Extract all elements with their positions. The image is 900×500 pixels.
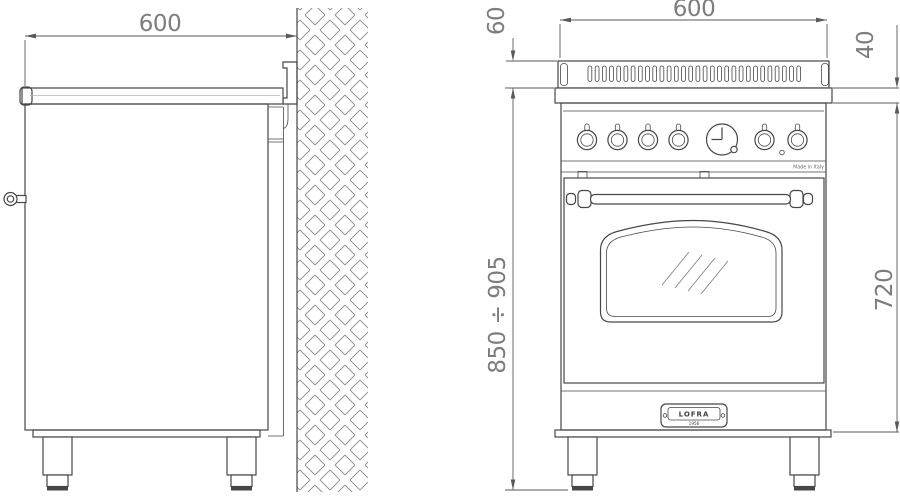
backguard-bracket-right [822, 64, 829, 86]
body-height-label: 720 [872, 269, 898, 311]
side-rear-step [268, 104, 288, 129]
door-handle-bar [567, 191, 813, 208]
arrowhead-right [286, 34, 297, 39]
vent-slot [646, 66, 650, 82]
knob-outer [577, 130, 596, 149]
side-foot-right [227, 437, 256, 491]
arrowhead-left [560, 18, 571, 23]
vent-slot [710, 66, 714, 82]
badge-year-label: 1956 [689, 421, 700, 426]
arrowhead-right [816, 18, 827, 23]
vent-slot [689, 66, 693, 82]
side-foot-left [43, 437, 72, 491]
arrowhead-left [25, 34, 36, 39]
vent-slot [667, 66, 671, 82]
vent-slot [588, 66, 592, 82]
dimension-side-width: 600 [25, 11, 297, 86]
door-hinge-right [700, 172, 709, 179]
front-view: Made in Italy LOFRA 1956 [555, 61, 832, 491]
vent-slot [674, 66, 678, 82]
vent-slot [682, 66, 686, 82]
indicator-light [780, 150, 785, 155]
side-rear-joints [268, 139, 284, 436]
side-view [4, 62, 297, 491]
front-width-label: 600 [673, 0, 715, 22]
door-window [601, 221, 783, 323]
oven-clock [707, 124, 738, 155]
front-foot-right [790, 437, 819, 491]
worktop-edge-label: 40 [853, 31, 879, 59]
made-in-italy-label: Made in Italy [793, 165, 824, 171]
control-knob [788, 124, 807, 150]
arrowhead-down [895, 422, 900, 433]
knob-outer [638, 130, 657, 149]
vent-slot [725, 66, 729, 82]
side-body [25, 104, 268, 430]
control-knob [669, 124, 688, 150]
vent-slot [732, 66, 736, 82]
oven-door [564, 178, 824, 383]
side-worktop [22, 88, 283, 104]
vent-slot [595, 66, 599, 82]
vent-slots [588, 66, 801, 82]
foot-base [47, 487, 68, 491]
vent-slot [782, 66, 786, 82]
vent-slot [624, 66, 628, 82]
vent-slot [617, 66, 621, 82]
side-backsplash [283, 62, 297, 104]
dimension-front-width: 600 [560, 0, 827, 58]
vent-slot [653, 66, 657, 82]
control-knobs [577, 124, 807, 150]
wall-hatch [297, 8, 368, 492]
handle-knob-outer [4, 193, 17, 206]
side-door-handle [4, 193, 26, 206]
foot-base [794, 487, 815, 491]
glass-reflection-lines [662, 252, 728, 294]
control-knob [608, 124, 627, 150]
vent-slot [754, 66, 758, 82]
vent-slot [696, 66, 700, 82]
handle-bar [591, 195, 791, 205]
badge-brand-label: LOFRA [679, 411, 710, 419]
overall-height-label: 850 ÷ 905 [485, 256, 511, 373]
control-knob [755, 124, 774, 150]
side-plinth [33, 430, 260, 437]
front-worktop [555, 88, 832, 103]
vent-slot [797, 66, 801, 82]
side-width-label: 600 [139, 11, 181, 37]
vent-slot [610, 66, 614, 82]
arrowhead-down [511, 480, 516, 491]
door-hinge-left [578, 172, 587, 179]
dimension-worktop-edge: 40 [833, 25, 899, 114]
arrowhead-down [895, 78, 900, 89]
window-inner-glass [607, 227, 777, 317]
arrowhead-down [511, 51, 516, 62]
control-knob [577, 124, 596, 150]
technical-drawing-sheet: 600 Made in Italy [0, 0, 900, 500]
vent-slot [602, 66, 606, 82]
vent-slot [761, 66, 765, 82]
front-foot-left [568, 437, 597, 491]
vent-slot [768, 66, 772, 82]
vent-slot [631, 66, 635, 82]
vent-slot [703, 66, 707, 82]
foot-base [231, 487, 252, 491]
vent-slot [790, 66, 794, 82]
vent-slot [775, 66, 779, 82]
range-cooker-dimension-drawing: 600 Made in Italy [0, 0, 900, 500]
vent-slot [660, 66, 664, 82]
dimension-backguard-height: 60 [484, 7, 557, 99]
knob-outer [755, 130, 774, 149]
knob-outer [669, 130, 688, 149]
dimension-body-height: 720 [833, 103, 899, 432]
vent-slot [739, 66, 743, 82]
vent-slot [718, 66, 722, 82]
brand-badge: LOFRA 1956 [661, 404, 727, 427]
backguard-bracket-left [561, 64, 568, 86]
front-plinth [555, 430, 831, 437]
knob-outer [788, 130, 807, 149]
foot-base [572, 487, 593, 491]
knob-outer [608, 130, 627, 149]
vent-slot [638, 66, 642, 82]
backguard-height-label: 60 [484, 7, 510, 35]
control-knob [638, 124, 657, 150]
clock-knob [731, 146, 737, 152]
vent-slot [746, 66, 750, 82]
wall-section [297, 8, 368, 492]
